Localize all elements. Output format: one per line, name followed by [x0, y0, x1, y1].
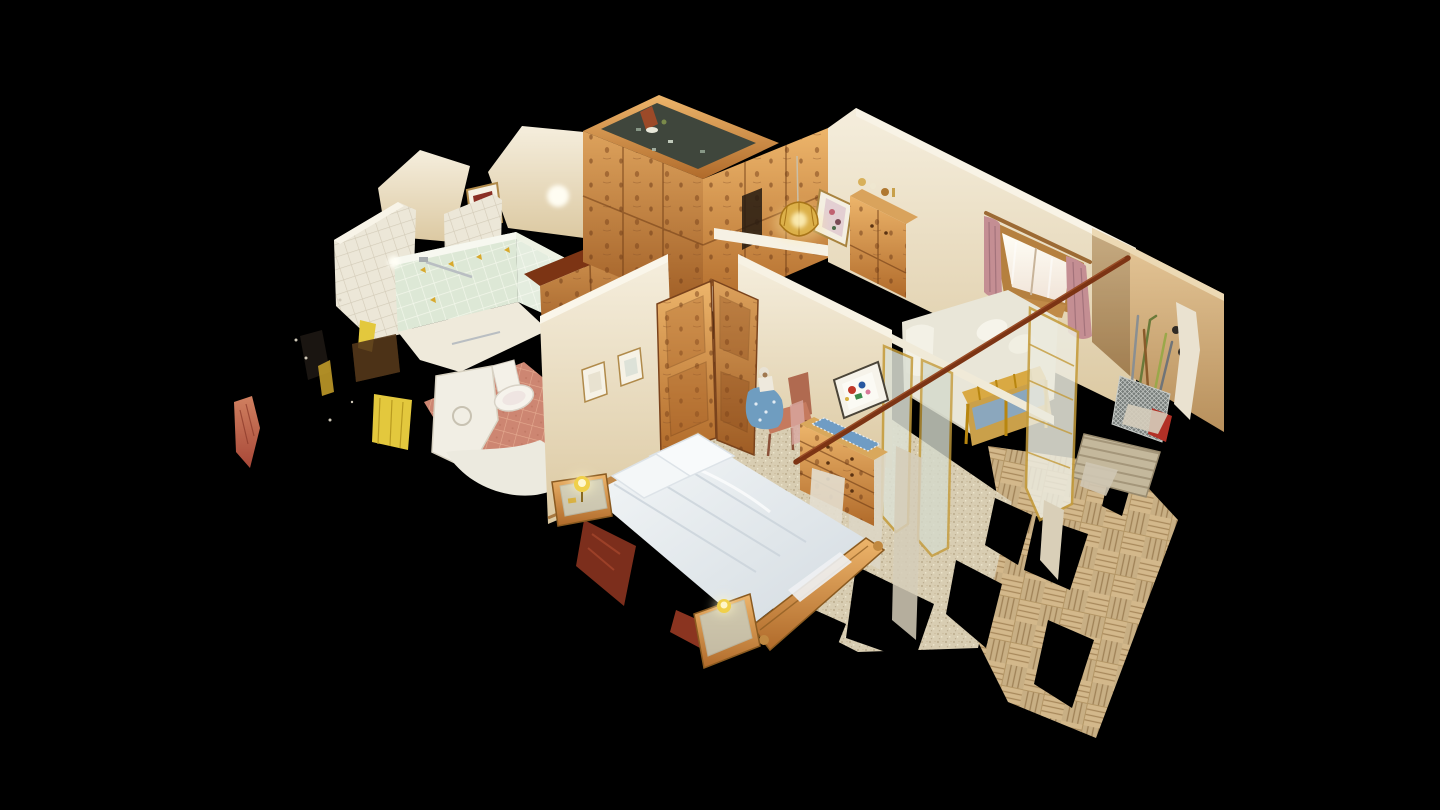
bedside-lamp [710, 594, 738, 618]
dollhouse-3d-render [0, 0, 1440, 810]
pine-double-doors [657, 280, 758, 455]
shower-head [419, 257, 428, 262]
dollhouse-viewport[interactable] [0, 0, 1440, 810]
mirror-door [918, 360, 952, 556]
framed-picture-1 [582, 362, 607, 402]
bathroom-light-glow [388, 256, 400, 268]
ceiling-light-glow [547, 185, 569, 207]
curtain-left [984, 216, 1002, 298]
glass-door [1026, 308, 1078, 520]
